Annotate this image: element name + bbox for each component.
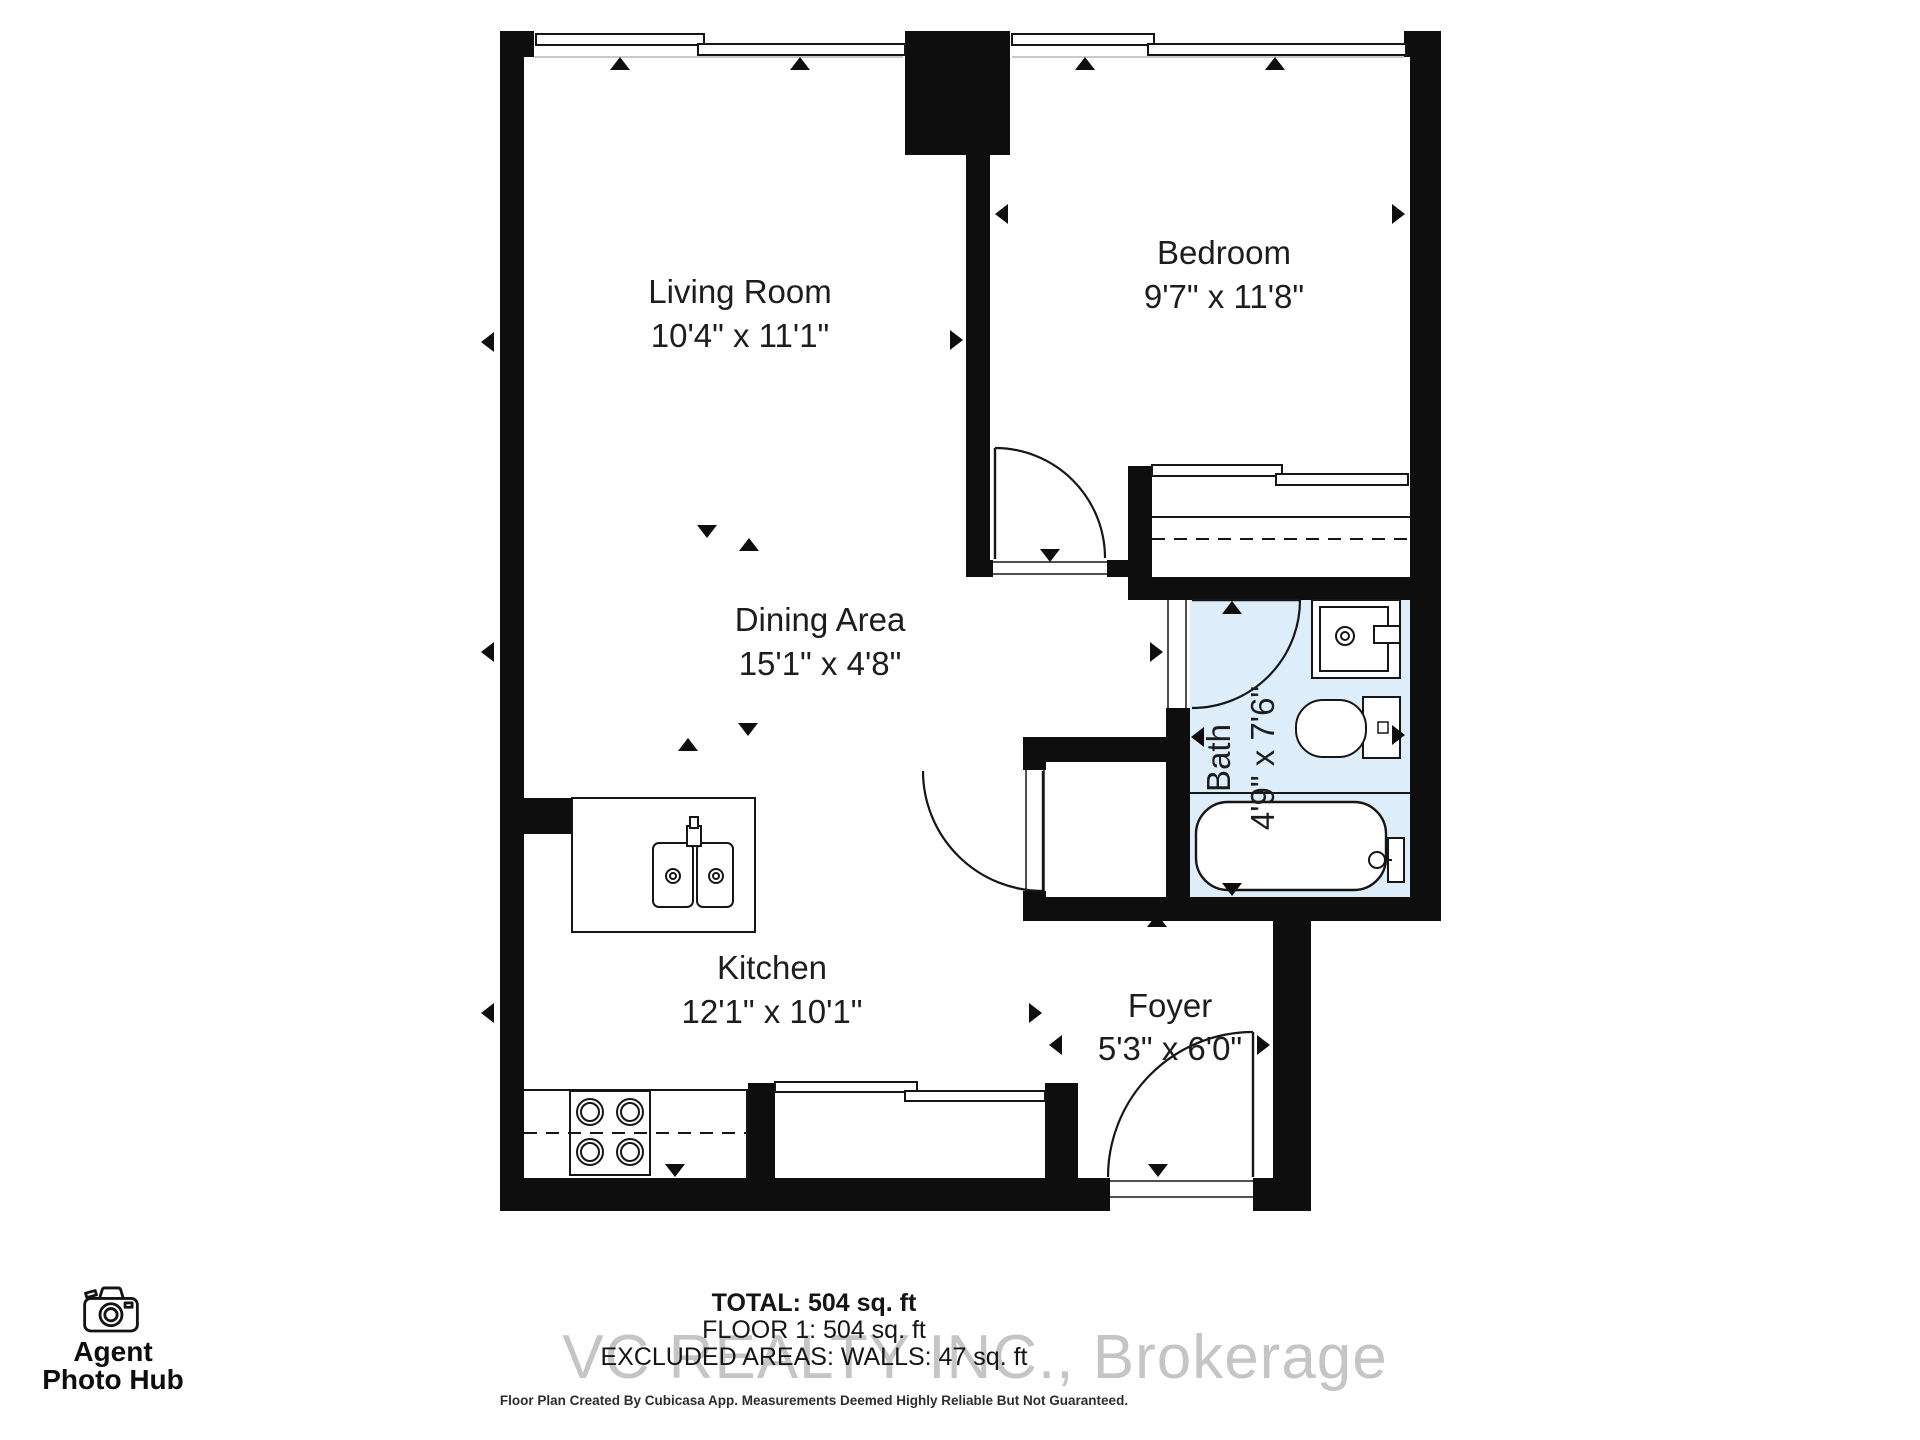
- room-dims-kitchen: 12'1" x 10'1": [682, 993, 863, 1030]
- dimension-arrow: [1148, 1164, 1168, 1177]
- camera-icon: [82, 1283, 140, 1335]
- wall: [1166, 708, 1190, 921]
- sink-basin-left: [653, 843, 693, 907]
- dimension-arrow: [665, 1164, 685, 1177]
- room-label-bath: Bath: [1200, 724, 1237, 792]
- room-dims-living-room: 10'4" x 11'1": [651, 317, 830, 354]
- room-label-bedroom: Bedroom: [1157, 234, 1291, 271]
- total-area-text: TOTAL: 504 sq. ft: [414, 1289, 1214, 1318]
- wall: [1045, 1083, 1078, 1178]
- window-pane: [1152, 465, 1282, 476]
- logo-text-line2: Photo Hub: [18, 1364, 208, 1396]
- wall: [1023, 897, 1441, 921]
- floor-plan: Living Room10'4" x 11'1"Bedroom9'7" x 11…: [0, 0, 1920, 1440]
- wall: [1128, 577, 1441, 600]
- window-pane: [698, 44, 905, 55]
- wall: [966, 560, 994, 577]
- window-pane: [775, 1082, 917, 1092]
- dimension-arrow: [481, 332, 494, 352]
- wall: [1253, 1178, 1311, 1211]
- dimension-arrow: [1049, 1035, 1062, 1055]
- wall: [905, 31, 1010, 155]
- dimension-arrow: [790, 57, 810, 70]
- window-pane: [536, 34, 704, 45]
- sink-basin-right: [697, 843, 733, 907]
- wall: [1273, 897, 1311, 1211]
- sink-faucet-nub: [690, 817, 698, 828]
- dimension-arrow: [1392, 204, 1405, 224]
- dimension-arrow: [610, 57, 630, 70]
- dimension-arrow: [1257, 1035, 1270, 1055]
- excluded-area-text: EXCLUDED AREAS: WALLS: 47 sq. ft: [414, 1343, 1214, 1372]
- dimension-arrow: [481, 1003, 494, 1023]
- dimension-arrow: [950, 330, 963, 350]
- dimension-arrow: [1075, 57, 1095, 70]
- window-pane: [905, 1091, 1045, 1101]
- room-dims-foyer: 5'3" x 6'0": [1098, 1030, 1242, 1067]
- room-dims-dining-area: 15'1" x 4'8": [739, 645, 902, 682]
- wall: [748, 1083, 775, 1178]
- window-pane: [1276, 474, 1408, 485]
- dimension-arrow: [738, 723, 758, 736]
- dimension-arrow: [481, 642, 494, 662]
- floor-area-text: FLOOR 1: 504 sq. ft: [414, 1316, 1214, 1345]
- wall: [500, 31, 534, 57]
- dimension-arrow: [1150, 642, 1163, 662]
- door-threshold: [1110, 1178, 1253, 1211]
- disclaimer-text: Floor Plan Created By Cubicasa App. Meas…: [414, 1393, 1214, 1408]
- window-pane: [1148, 44, 1406, 55]
- dimension-arrow: [739, 538, 759, 551]
- wall: [1023, 737, 1046, 772]
- dimension-arrow: [697, 525, 717, 538]
- wall: [966, 155, 990, 561]
- wall: [500, 798, 572, 834]
- toilet-button: [1378, 722, 1388, 733]
- room-dims-bedroom: 9'7" x 11'8": [1144, 278, 1304, 315]
- room-label-dining-area: Dining Area: [735, 601, 906, 638]
- dimension-arrow: [1029, 1003, 1042, 1023]
- window-pane: [1012, 34, 1154, 45]
- toilet-bowl: [1296, 700, 1366, 757]
- bathtub: [1196, 802, 1386, 890]
- wall: [1410, 31, 1441, 921]
- dimension-arrow: [1265, 57, 1285, 70]
- bath-vanity-soap: [1374, 626, 1400, 643]
- wall: [500, 1178, 1110, 1211]
- room-label-kitchen: Kitchen: [717, 949, 827, 986]
- dimension-arrow: [678, 738, 698, 751]
- room-dims-bath: 4'9" x 7'6": [1244, 686, 1281, 830]
- wall: [1128, 466, 1152, 577]
- room-label-living-room: Living Room: [648, 273, 831, 310]
- wall: [500, 31, 524, 1211]
- bedroom-door-arc: [995, 448, 1105, 558]
- floor-plan-page: Living Room10'4" x 11'1"Bedroom9'7" x 11…: [0, 0, 1920, 1440]
- dimension-arrow: [995, 204, 1008, 224]
- room-label-foyer: Foyer: [1128, 987, 1212, 1024]
